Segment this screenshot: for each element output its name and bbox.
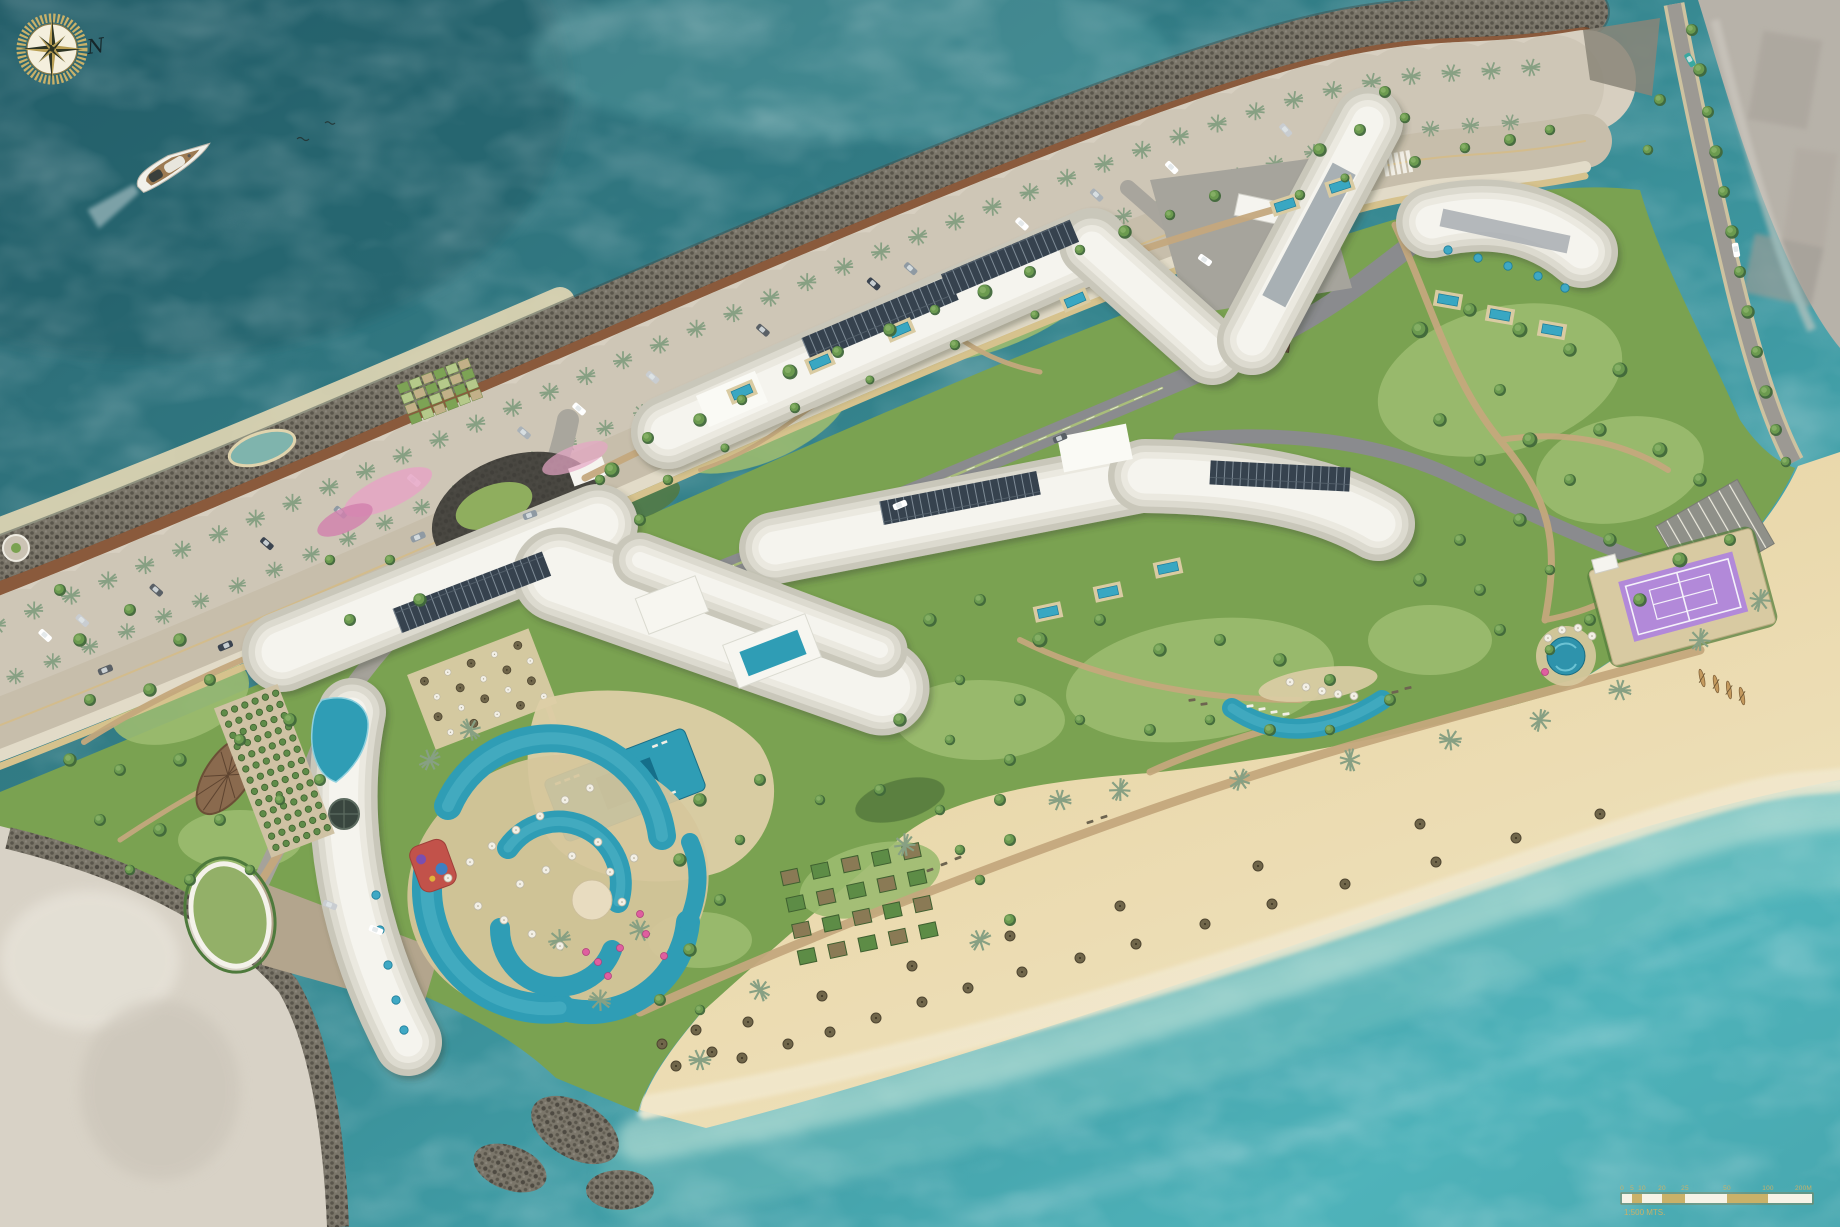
- cabana: [883, 902, 903, 919]
- tree-icon: [693, 793, 707, 807]
- tree-icon: [874, 784, 886, 796]
- tree-icon: [314, 774, 326, 786]
- pool-umbrella-icon: [1558, 626, 1566, 634]
- pink-umbrella-icon: [595, 959, 602, 966]
- tree-icon: [1734, 266, 1746, 278]
- tree-icon: [1523, 433, 1538, 448]
- tree-icon: [1709, 145, 1723, 159]
- tree-icon: [783, 365, 798, 380]
- tree-icon: [1400, 113, 1411, 124]
- tree-icon: [214, 814, 226, 826]
- tree-icon: [930, 305, 941, 316]
- tree-icon: [84, 694, 96, 706]
- cabana: [816, 888, 836, 905]
- pink-umbrella-icon: [1542, 669, 1549, 676]
- beach-umbrella-icon: [1017, 967, 1027, 977]
- tree-icon: [1033, 633, 1048, 648]
- tree-icon: [1593, 423, 1607, 437]
- pool-umbrella-icon: [516, 880, 524, 888]
- beach-umbrella-icon: [917, 997, 927, 1007]
- pool-umbrella-icon: [528, 930, 536, 938]
- tree-icon: [1686, 24, 1698, 36]
- tree-icon: [1725, 225, 1739, 239]
- beach-umbrella-icon: [691, 1025, 701, 1035]
- pool-umbrella-icon: [1318, 687, 1326, 695]
- tree-icon: [654, 994, 666, 1006]
- tree-icon: [815, 795, 826, 806]
- scale-caption: 1:500 MTS.: [1624, 1208, 1665, 1217]
- tree-icon: [1633, 593, 1647, 607]
- pool-umbrella-icon: [1302, 683, 1310, 691]
- cabana: [907, 869, 927, 886]
- tree-icon: [642, 432, 654, 444]
- tree-icon: [1460, 143, 1471, 154]
- cabana: [852, 908, 872, 925]
- tree-icon: [1004, 914, 1016, 926]
- tree-icon: [1075, 715, 1086, 726]
- tree-icon: [1144, 724, 1156, 736]
- tree-icon: [735, 835, 746, 846]
- scale-bar-segment: [1662, 1194, 1685, 1203]
- tree-icon: [935, 805, 946, 816]
- cabana: [858, 935, 878, 952]
- beach-umbrella-icon: [707, 1047, 717, 1057]
- tree-icon: [1031, 311, 1040, 320]
- roundabout-island: [11, 543, 21, 553]
- tree-icon: [1324, 674, 1336, 686]
- tree-icon: [125, 865, 136, 876]
- beach-umbrella-icon: [743, 1017, 753, 1027]
- tree-icon: [994, 794, 1006, 806]
- pool-umbrella-icon: [630, 854, 638, 862]
- tree-icon: [1702, 106, 1714, 118]
- tree-icon: [184, 874, 196, 886]
- pool-umbrella-icon: [1574, 624, 1582, 632]
- beach-umbrella-icon: [1595, 809, 1605, 819]
- tree-icon: [1384, 694, 1396, 706]
- tree-icon: [413, 593, 427, 607]
- tree-icon: [1273, 653, 1287, 667]
- scale-bar-segment: [1632, 1194, 1642, 1203]
- tree-icon: [866, 376, 875, 385]
- beach-umbrella-icon: [825, 1027, 835, 1037]
- scale-tick-label: 10: [1638, 1185, 1646, 1192]
- tree-icon: [1781, 457, 1792, 468]
- pool-umbrella-icon: [606, 868, 614, 876]
- tree-icon: [1654, 94, 1666, 106]
- tree-icon: [63, 753, 77, 767]
- tree-icon: [1603, 533, 1617, 547]
- pool-umbrella-icon: [586, 784, 594, 792]
- tree-icon: [955, 845, 966, 856]
- scale-bar-segment: [1768, 1194, 1812, 1203]
- tree-icon: [1504, 134, 1516, 146]
- beach-umbrella-icon: [1200, 919, 1210, 929]
- pool-island: [572, 880, 612, 920]
- tree-icon: [1379, 86, 1391, 98]
- scale-bar-segment: [1622, 1194, 1632, 1203]
- tree-icon: [1295, 190, 1306, 201]
- tree-icon: [1209, 190, 1221, 202]
- tree-icon: [595, 475, 606, 486]
- cabana: [847, 882, 867, 899]
- tree-icon: [1075, 245, 1086, 256]
- pool-umbrella-icon: [488, 842, 496, 850]
- tree-icon: [1643, 145, 1654, 156]
- scale-tick-label: 200M: [1795, 1185, 1812, 1192]
- pink-umbrella-icon: [617, 945, 624, 952]
- tree-icon: [1693, 63, 1707, 77]
- tree-icon: [955, 675, 966, 686]
- tree-icon: [673, 853, 687, 867]
- cabana: [913, 895, 933, 912]
- beach-umbrella-icon: [1075, 953, 1085, 963]
- hot-tub: [1474, 254, 1482, 262]
- tree-icon: [344, 614, 356, 626]
- tree-icon: [1014, 694, 1026, 706]
- tree-icon: [1325, 725, 1336, 736]
- tree-icon: [883, 323, 897, 337]
- tree-icon: [1693, 473, 1707, 487]
- beach-umbrella-icon: [817, 991, 827, 1001]
- tree-icon: [663, 475, 674, 486]
- hot-tub: [384, 961, 392, 969]
- tree-icon: [1474, 584, 1486, 596]
- tree-icon: [1264, 724, 1276, 736]
- beach-umbrella-icon: [737, 1053, 747, 1063]
- tree-icon: [605, 463, 620, 478]
- cabana: [792, 921, 812, 938]
- pool-umbrella-icon: [536, 812, 544, 820]
- pool-umbrella-icon: [542, 866, 550, 874]
- tree-icon: [1653, 443, 1668, 458]
- tree-icon: [1454, 534, 1466, 546]
- tree-icon: [975, 875, 986, 886]
- tree-icon: [1584, 614, 1596, 626]
- beach-umbrella-icon: [671, 1061, 681, 1071]
- tree-icon: [832, 346, 844, 358]
- beach-umbrella-icon: [1131, 939, 1141, 949]
- hot-tub: [1444, 246, 1452, 254]
- tree-icon: [385, 555, 396, 566]
- cabana: [828, 941, 848, 958]
- cabana: [919, 922, 939, 939]
- hot-tub: [400, 1026, 408, 1034]
- hot-tub: [1534, 272, 1542, 280]
- rock-jetty: [586, 1170, 654, 1210]
- beach-umbrella-icon: [907, 961, 917, 971]
- tree-icon: [1770, 424, 1782, 436]
- beach-umbrella-icon: [1267, 899, 1277, 909]
- beach-umbrella-icon: [871, 1013, 881, 1023]
- tree-icon: [204, 674, 216, 686]
- scale-bar-segment: [1727, 1194, 1768, 1203]
- tree-icon: [1354, 124, 1366, 136]
- pool-umbrella-icon: [500, 916, 508, 924]
- beach-umbrella-icon: [1253, 861, 1263, 871]
- scale-tick-label: 20: [1658, 1185, 1666, 1192]
- tree-icon: [1494, 384, 1506, 396]
- cabana: [888, 928, 908, 945]
- tree-icon: [73, 633, 87, 647]
- tree-icon: [1474, 454, 1486, 466]
- tree-icon: [275, 795, 286, 806]
- tree-icon: [695, 1005, 706, 1016]
- tree-icon: [790, 403, 801, 414]
- tree-icon: [1165, 210, 1176, 221]
- cabana: [797, 948, 817, 965]
- scale-tick-label: 5: [1630, 1185, 1634, 1192]
- pool-umbrella-icon: [1588, 632, 1596, 640]
- tree-icon: [1433, 413, 1447, 427]
- hot-tub: [372, 891, 380, 899]
- tree-icon: [1409, 156, 1421, 168]
- tree-icon: [1004, 834, 1016, 846]
- cabana: [811, 862, 831, 879]
- cabana: [877, 875, 897, 892]
- tree-icon: [1412, 322, 1429, 339]
- tree-icon: [114, 764, 126, 776]
- scale-tick-label: 50: [1723, 1185, 1731, 1192]
- tree-icon: [325, 555, 336, 566]
- pool-umbrella-icon: [561, 796, 569, 804]
- tree-icon: [1751, 346, 1763, 358]
- cabana: [871, 849, 891, 866]
- tree-icon: [1153, 643, 1167, 657]
- scale-bar-segment: [1642, 1194, 1662, 1203]
- tree-icon: [173, 633, 187, 647]
- scale-tick-label: 25: [1681, 1185, 1689, 1192]
- hot-tub: [1561, 284, 1569, 292]
- tree-icon: [950, 340, 961, 351]
- tree-icon: [1004, 754, 1016, 766]
- cabana: [780, 868, 800, 885]
- pool-umbrella-icon: [444, 874, 452, 882]
- tree-icon: [1214, 634, 1226, 646]
- tree-icon: [893, 713, 907, 727]
- tree-icon: [683, 943, 697, 957]
- beach-umbrella-icon: [657, 1039, 667, 1049]
- tree-icon: [1094, 614, 1106, 626]
- tree-icon: [54, 584, 66, 596]
- tree-icon: [721, 444, 730, 453]
- tree-icon: [1205, 715, 1216, 726]
- beach-umbrella-icon: [1340, 879, 1350, 889]
- tree-icon: [173, 753, 187, 767]
- tree-icon: [1413, 573, 1427, 587]
- tree-icon: [1545, 645, 1556, 656]
- tree-icon: [143, 683, 157, 697]
- tree-icon: [1513, 513, 1527, 527]
- pink-umbrella-icon: [661, 953, 668, 960]
- hot-tub: [392, 996, 400, 1004]
- pool-umbrella-icon: [466, 858, 474, 866]
- tree-icon: [974, 594, 986, 606]
- tree-icon: [1024, 266, 1036, 278]
- pool-umbrella-icon: [594, 838, 602, 846]
- tree-icon: [153, 823, 167, 837]
- pool-umbrella-icon: [568, 852, 576, 860]
- scale-tick-label: 100: [1762, 1185, 1774, 1192]
- pink-umbrella-icon: [637, 911, 644, 918]
- tree-icon: [945, 735, 956, 746]
- tree-icon: [1673, 553, 1688, 568]
- pool-umbrella-icon: [474, 902, 482, 910]
- pink-umbrella-icon: [605, 973, 612, 980]
- tree-icon: [923, 613, 937, 627]
- tree-icon: [234, 734, 246, 746]
- beach-umbrella-icon: [783, 1039, 793, 1049]
- pool-umbrella-icon: [1334, 690, 1342, 698]
- tree-icon: [1564, 474, 1576, 486]
- tree-icon: [1341, 174, 1350, 183]
- tree-icon: [245, 865, 256, 876]
- pool-umbrella-icon: [556, 942, 564, 950]
- tree-icon: [754, 774, 766, 786]
- cabana: [841, 856, 861, 873]
- scale-tick-label: 0: [1620, 1185, 1624, 1192]
- pool-umbrella-icon: [1544, 634, 1552, 642]
- tree-icon: [1741, 305, 1755, 319]
- tree-icon: [1613, 363, 1628, 378]
- tree-icon: [124, 604, 136, 616]
- scale-bar-segment: [1685, 1194, 1727, 1203]
- tree-icon: [634, 514, 646, 526]
- beach-umbrella-icon: [1005, 931, 1015, 941]
- tree-icon: [978, 285, 993, 300]
- tree-icon: [1759, 385, 1773, 399]
- site-plan-canvas: .pcore{fill:#5e6e5a}.pfr{stroke:#87a083;…: [0, 0, 1840, 1227]
- cabana: [822, 915, 842, 932]
- tree-icon: [1313, 143, 1327, 157]
- beach-umbrella-icon: [1431, 857, 1441, 867]
- pink-umbrella-icon: [583, 949, 590, 956]
- beach-umbrella-icon: [1415, 819, 1425, 829]
- pink-umbrella-icon: [643, 931, 650, 938]
- tree-icon: [693, 413, 707, 427]
- resort-master-plan: .pcore{fill:#5e6e5a}.pfr{stroke:#87a083;…: [0, 0, 1840, 1227]
- tree-icon: [94, 814, 106, 826]
- pool-umbrella-icon: [512, 826, 520, 834]
- tree-icon: [1463, 303, 1477, 317]
- tree-icon: [1118, 225, 1132, 239]
- beach-umbrella-icon: [1115, 901, 1125, 911]
- beach-umbrella-icon: [963, 983, 973, 993]
- tree-icon: [1724, 534, 1736, 546]
- tree-icon: [1563, 343, 1577, 357]
- tree-icon: [1545, 565, 1556, 576]
- tree-icon: [1494, 624, 1506, 636]
- hot-tub: [1504, 262, 1512, 270]
- cabana: [786, 895, 806, 912]
- tree-icon: [1718, 186, 1730, 198]
- pool-umbrella-icon: [1350, 692, 1358, 700]
- tree-icon: [1545, 125, 1556, 136]
- pool-umbrella-icon: [1286, 678, 1294, 686]
- tree-icon: [1513, 323, 1528, 338]
- tree-icon: [714, 894, 726, 906]
- tree-icon: [737, 395, 748, 406]
- tree-icon: [283, 713, 297, 727]
- beach-umbrella-icon: [1511, 833, 1521, 843]
- pool-umbrella-icon: [618, 898, 626, 906]
